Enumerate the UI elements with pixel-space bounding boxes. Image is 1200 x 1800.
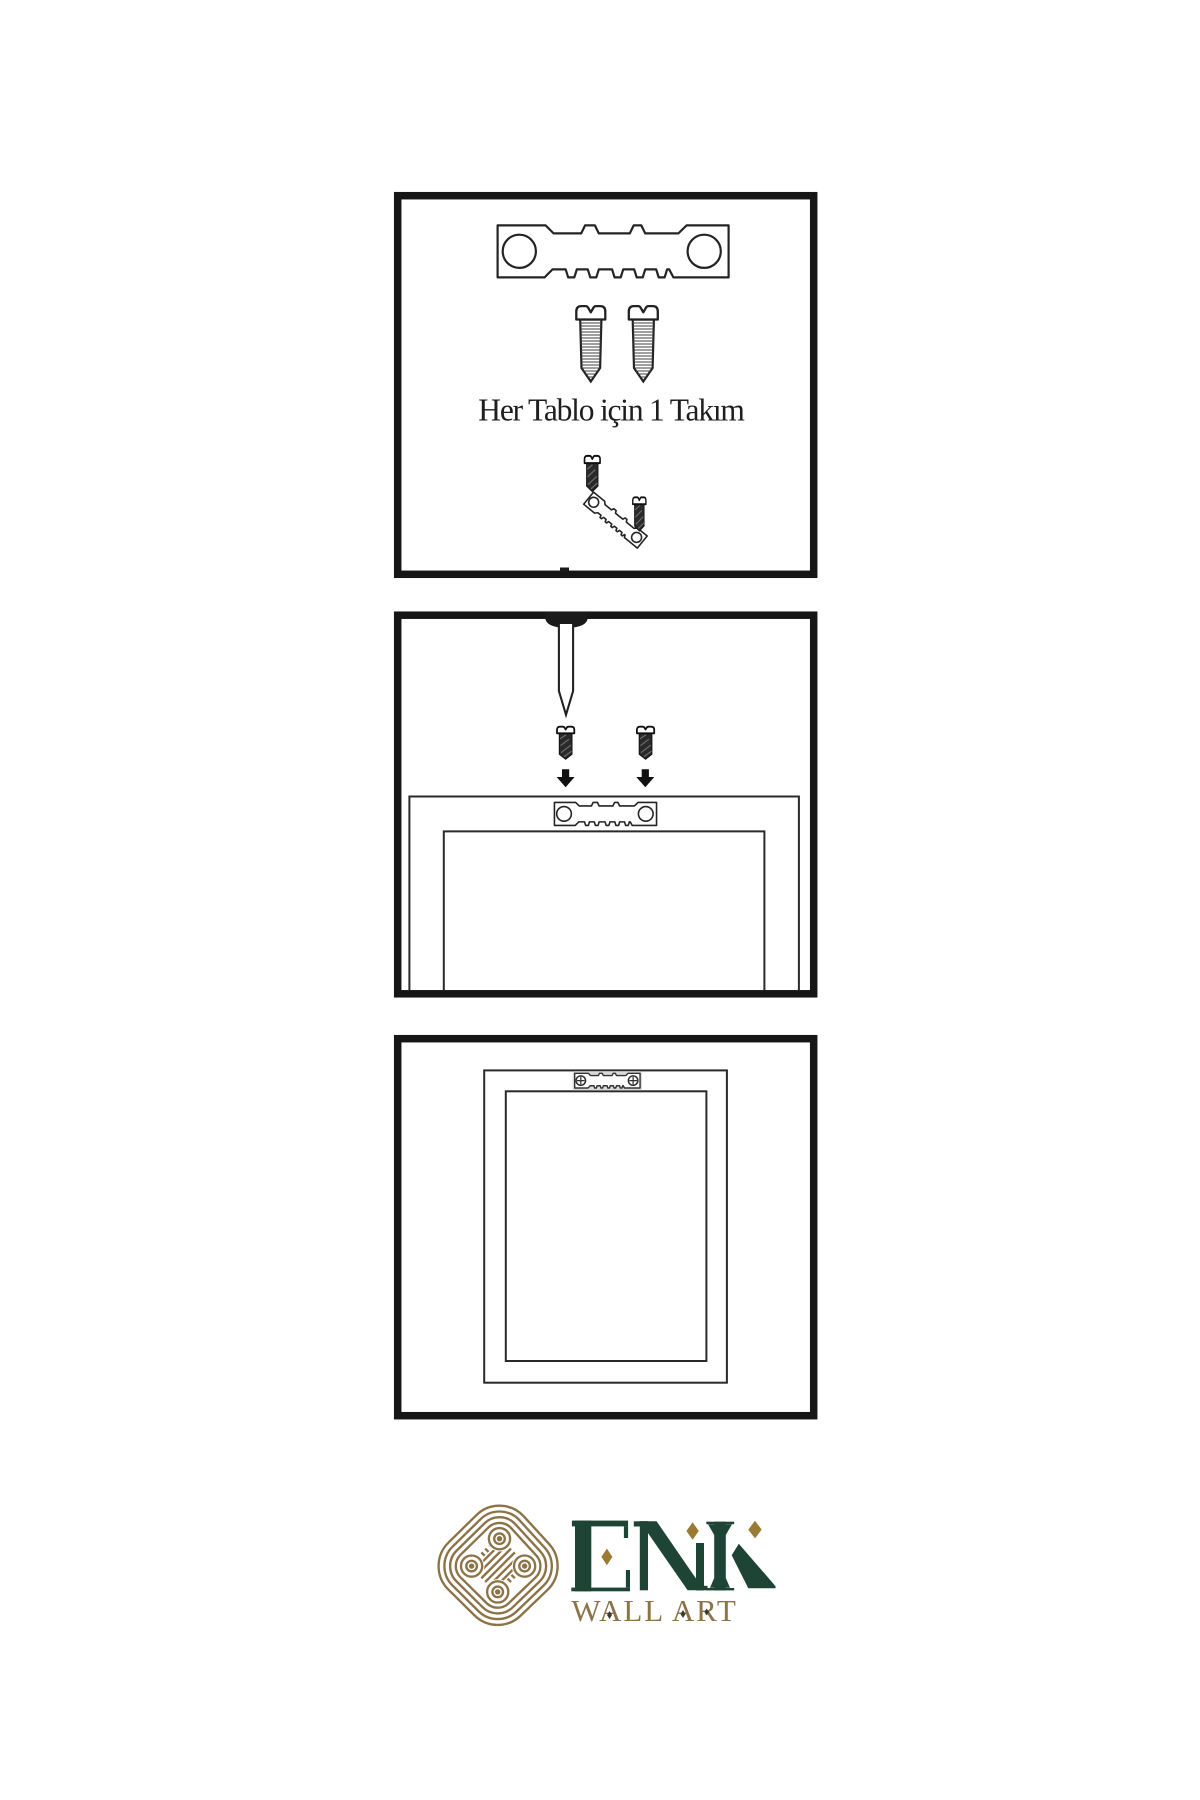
- svg-text:Her Tablo için 1 Takım: Her Tablo için 1 Takım: [478, 393, 745, 428]
- svg-text:WALL ART: WALL ART: [571, 1593, 737, 1628]
